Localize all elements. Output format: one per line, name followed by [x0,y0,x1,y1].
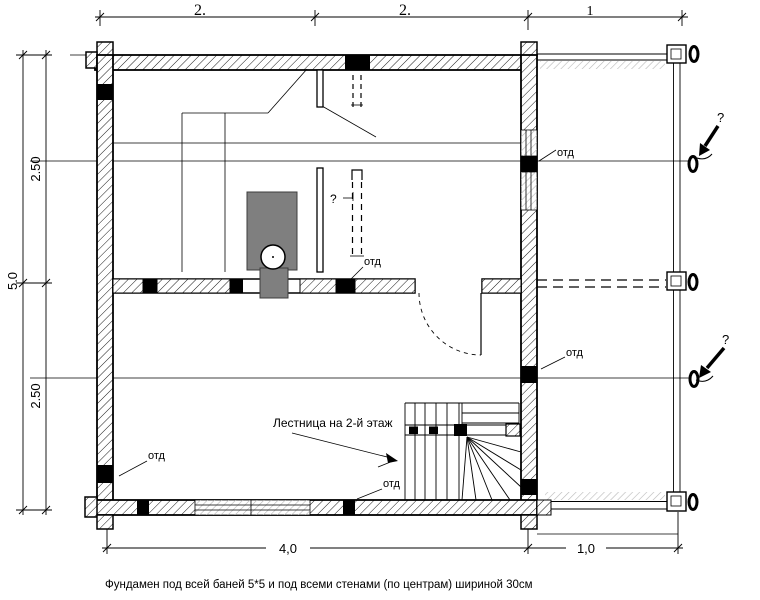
porch-post-middle [667,272,686,290]
floor-plan-drawing: 2. 2. 1 5.0 2.50 2.50 4,0 1,0 [0,0,760,600]
right-wall-pier-bottom [521,479,537,495]
porch [537,45,698,511]
corner-log-bottom-left-h [85,497,97,517]
porch-bottom-hatch-strip [545,492,665,500]
bottom-wall-window [195,500,310,515]
interior-wall-pier-3 [336,279,355,293]
dim-top-2: 2. [399,2,411,19]
door-swing-arc [419,293,481,355]
corner-log-top-left-h [86,52,97,68]
top-wall-dark-segment [345,55,370,70]
dimension-bottom: 4,0 1,0 [102,512,683,556]
bottom-wall [95,500,537,515]
right-wall-pier-top [521,156,537,172]
otd-label-1: отд [557,147,575,159]
interior-wall-hatch-4 [355,279,415,293]
dim-bottom-main: 4,0 [279,541,297,556]
dim-bottom-porch: 1,0 [577,541,595,556]
stair-winder-treads [462,437,521,500]
right-wall-window-upper [521,130,537,156]
bottom-wall-porch-stub [537,500,551,515]
top-wall [95,55,536,70]
foundation-pile-markers [689,47,698,510]
porch-top-hatch-strip [540,61,665,69]
partition-stub-upper [317,70,323,107]
stair-newel-post-2 [506,424,520,436]
left-wall-pier-top [97,84,113,100]
porch-post-top [667,45,686,63]
left-wall-pier-bottom [97,465,113,483]
grid-lines [30,143,689,378]
right-wall-window-lower [521,172,537,210]
dim-top-3: 1 [587,4,594,19]
stair-rail-post-1 [409,427,418,435]
dim-top-1: 2. [194,2,206,19]
interior-wall-hatch-2 [157,279,230,293]
dim-left-lower: 2.50 [28,383,43,408]
question-mark-middle: ? [722,332,729,347]
corner-log-top-right-v [521,42,537,56]
right-wall-pier-middle [521,366,537,383]
dim-left-upper: 2.50 [28,156,43,181]
interior-door [419,293,481,355]
interior-wall-pier-2 [230,279,243,293]
question-mark-top: ? [717,110,724,125]
floor-plan-page: 2. 2. 1 5.0 2.50 2.50 4,0 1,0 [0,0,760,600]
interior-wall-hatch-3 [300,279,336,293]
bottom-wall-pier-right [343,500,355,515]
interior-wall-hatch-5 [482,279,521,293]
question-arrow-top: ? [697,110,724,159]
left-wall [97,55,113,515]
right-wall [521,55,537,515]
stove-base [260,268,288,298]
planned-partition-lower-dashed [350,170,364,256]
porch-post-bottom [667,492,686,511]
interior-wall [113,279,521,293]
otd-label-4: отд [148,450,166,462]
porch-planned-wall-dashed [537,280,666,287]
interior-wall-pier-1 [143,279,157,293]
otd-label-3: отд [566,347,584,359]
bottom-wall-pier-left [137,500,149,515]
partitions: ? [317,70,364,272]
staircase-label: Лестница на 2-й этаж [273,416,393,430]
corner-log-bottom-left-v [97,515,113,529]
partition-stub-lower [317,168,323,272]
corner-log-top-left-v [97,42,113,56]
question-mark-partition: ? [330,192,337,206]
question-arrow-middle: ? [696,332,729,381]
annotations: отд отд отд отд отд Лестница на 2-й этаж… [119,110,729,499]
otd-label-2: отд [364,256,382,268]
stair-newel-post [454,424,467,436]
dim-left-total: 5.0 [5,272,20,290]
interior-wall-hatch-1 [113,279,143,293]
otd-label-5: отд [383,478,401,490]
dimension-left: 5.0 2.50 2.50 [5,50,90,515]
corner-log-bottom-right-v [521,515,537,529]
stair-rail-post-2 [429,427,438,435]
dimension-top: 2. 2. 1 [95,2,688,30]
planned-partition-upper-dashed [351,75,363,107]
foundation-footnote: Фундамен под всей баней 5*5 и под всеми … [105,579,533,591]
staircase [405,403,521,500]
stove-firebox-dot [272,256,274,258]
